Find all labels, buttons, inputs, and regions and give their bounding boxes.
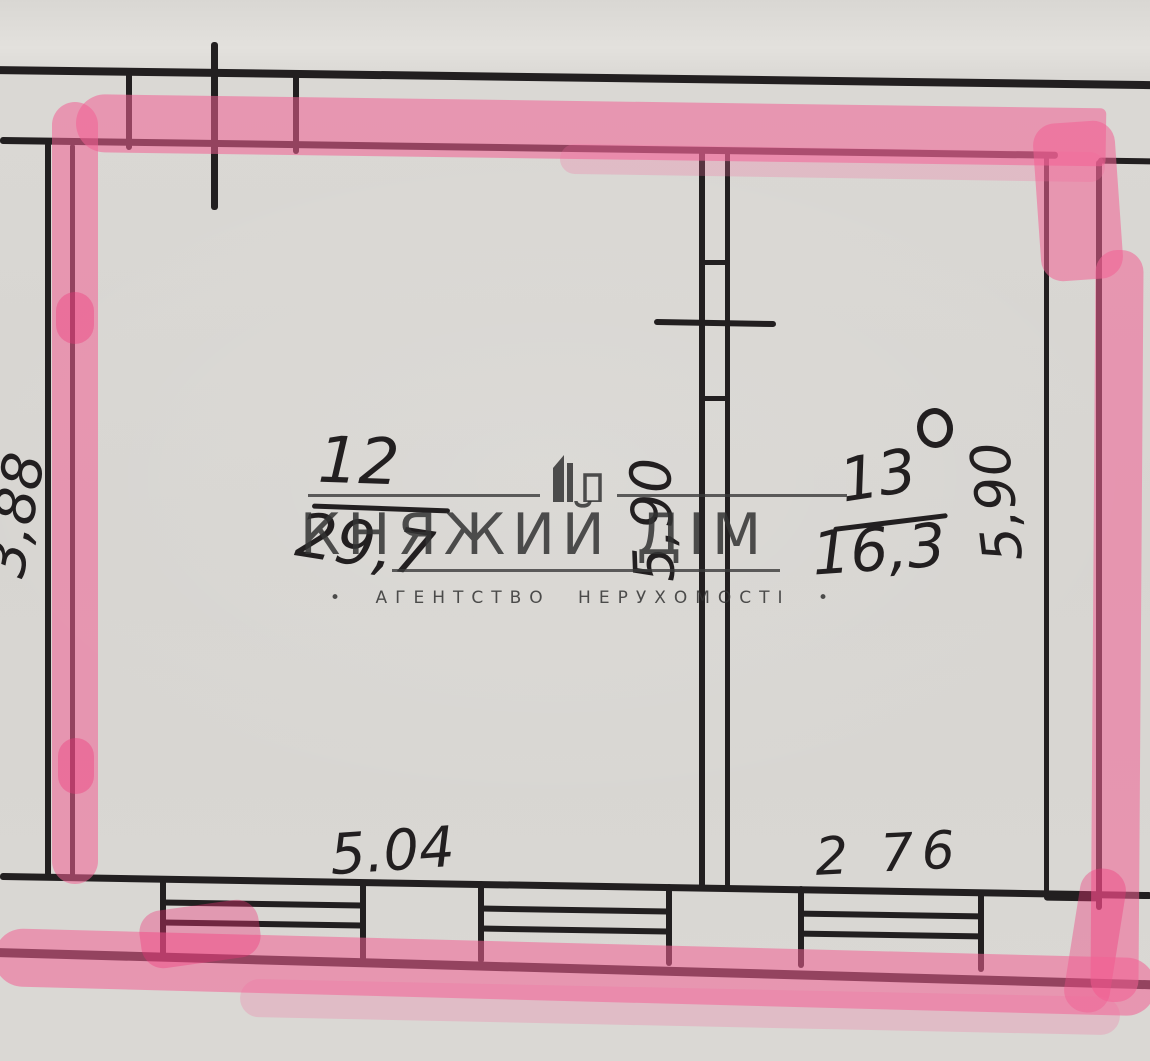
window3-pane-lower <box>798 931 982 940</box>
room-12-number: 12 <box>317 429 401 496</box>
floor-plan-photo: 12 29,7 13 16,3 3,88 5,90 5,90 5.04 2 76… <box>0 0 1150 1061</box>
window2-pane-lower <box>478 925 670 934</box>
watermark-subtitle-text: АГЕНТСТВО НЕРУХОМОСТІ <box>375 588 790 608</box>
watermark-bullet-left: • <box>330 588 348 608</box>
watermark-rule-left <box>308 494 540 497</box>
dimension-room12-width: 5.04 <box>328 820 456 885</box>
window3-pane-upper <box>798 911 982 920</box>
wall-middle-tick <box>654 319 776 327</box>
dimension-room13-height: 5,90 <box>963 439 1031 565</box>
wall-middle-connector-1 <box>699 260 730 265</box>
wall-top-outer <box>0 66 1150 89</box>
watermark-underline <box>392 569 780 572</box>
window2-pane-upper <box>478 905 670 914</box>
building-skyline-icon <box>541 450 615 502</box>
degree-circle-icon <box>914 406 955 451</box>
watermark-title: КНЯЖИЙ ДІМ <box>300 502 768 568</box>
dimension-room13-width: 2 76 <box>814 824 964 884</box>
highlight-left-bright-1 <box>56 292 94 344</box>
highlight-left-bright-2 <box>58 738 94 794</box>
room-13-number: 13 <box>836 440 921 511</box>
watermark-subtitle: • АГЕНТСТВО НЕРУХОМОСТІ • <box>330 588 836 608</box>
watermark-rule-right <box>617 494 847 497</box>
room-13-area: 16,3 <box>810 515 947 584</box>
watermark-bullet-right: • <box>818 588 836 608</box>
wall-middle-connector-2 <box>699 396 730 401</box>
